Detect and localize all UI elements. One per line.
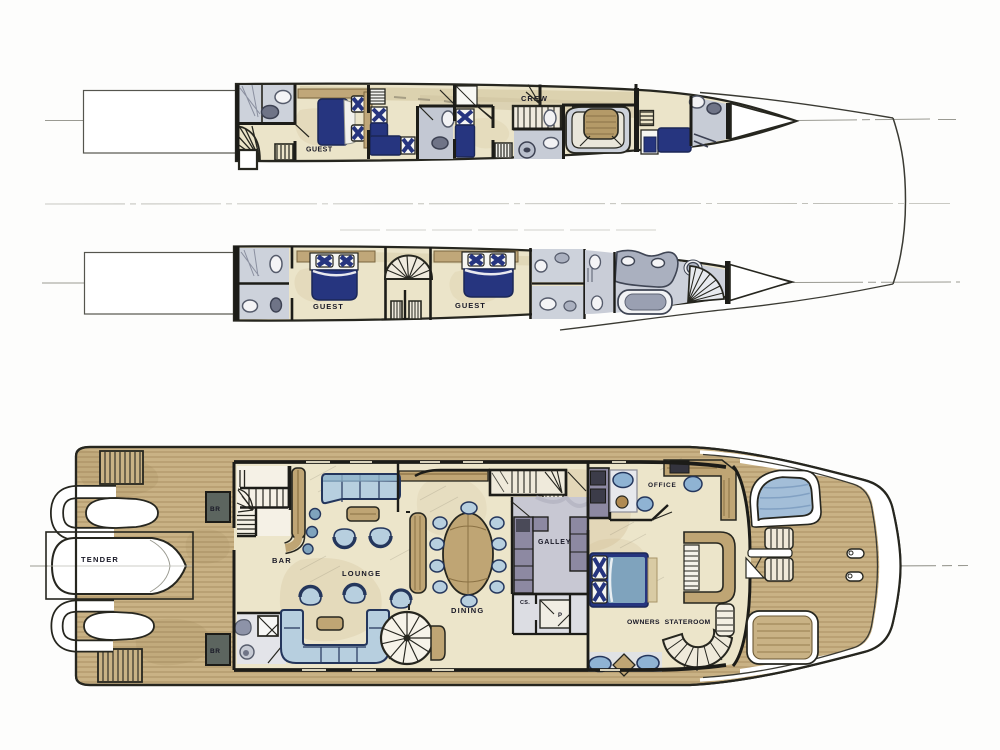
svg-text:DINING: DINING	[451, 606, 484, 615]
svg-text:GUEST: GUEST	[313, 302, 344, 311]
svg-text:TENDER: TENDER	[81, 555, 119, 564]
svg-text:BAR: BAR	[272, 556, 292, 565]
svg-text:GUEST: GUEST	[306, 147, 333, 154]
svg-text:GALLEY: GALLEY	[538, 539, 571, 546]
svg-text:CS.: CS.	[520, 600, 530, 606]
svg-text:LOUNGE: LOUNGE	[342, 569, 381, 578]
svg-text:GUEST: GUEST	[455, 301, 486, 310]
svg-text:BR: BR	[210, 506, 220, 513]
svg-text:OWNERS STATEROOM: OWNERS STATEROOM	[627, 619, 711, 626]
svg-text:OFFICE: OFFICE	[648, 482, 677, 489]
svg-text:BR: BR	[210, 648, 220, 655]
svg-text:P: P	[558, 613, 562, 619]
